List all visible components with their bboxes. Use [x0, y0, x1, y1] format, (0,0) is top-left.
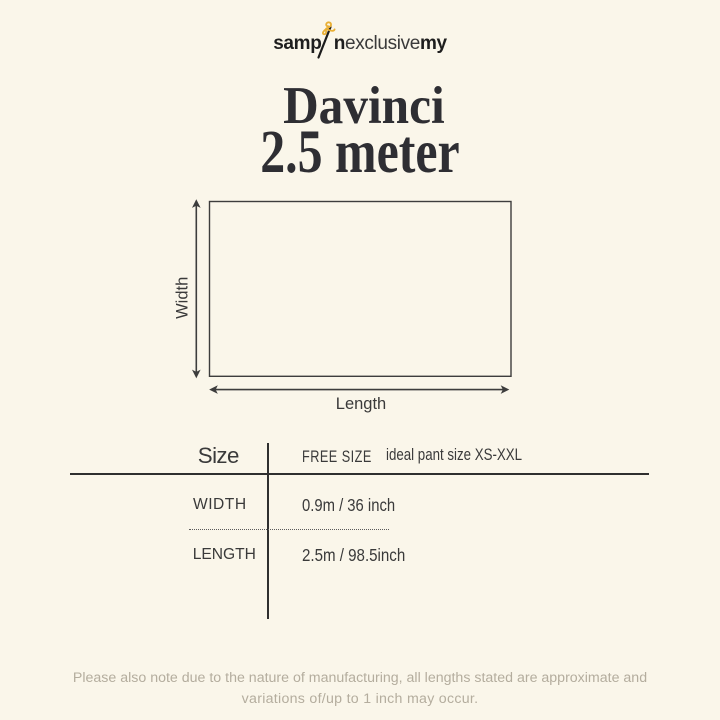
- svg-text:Length: Length: [336, 395, 386, 413]
- svg-text:Width: Width: [173, 277, 191, 319]
